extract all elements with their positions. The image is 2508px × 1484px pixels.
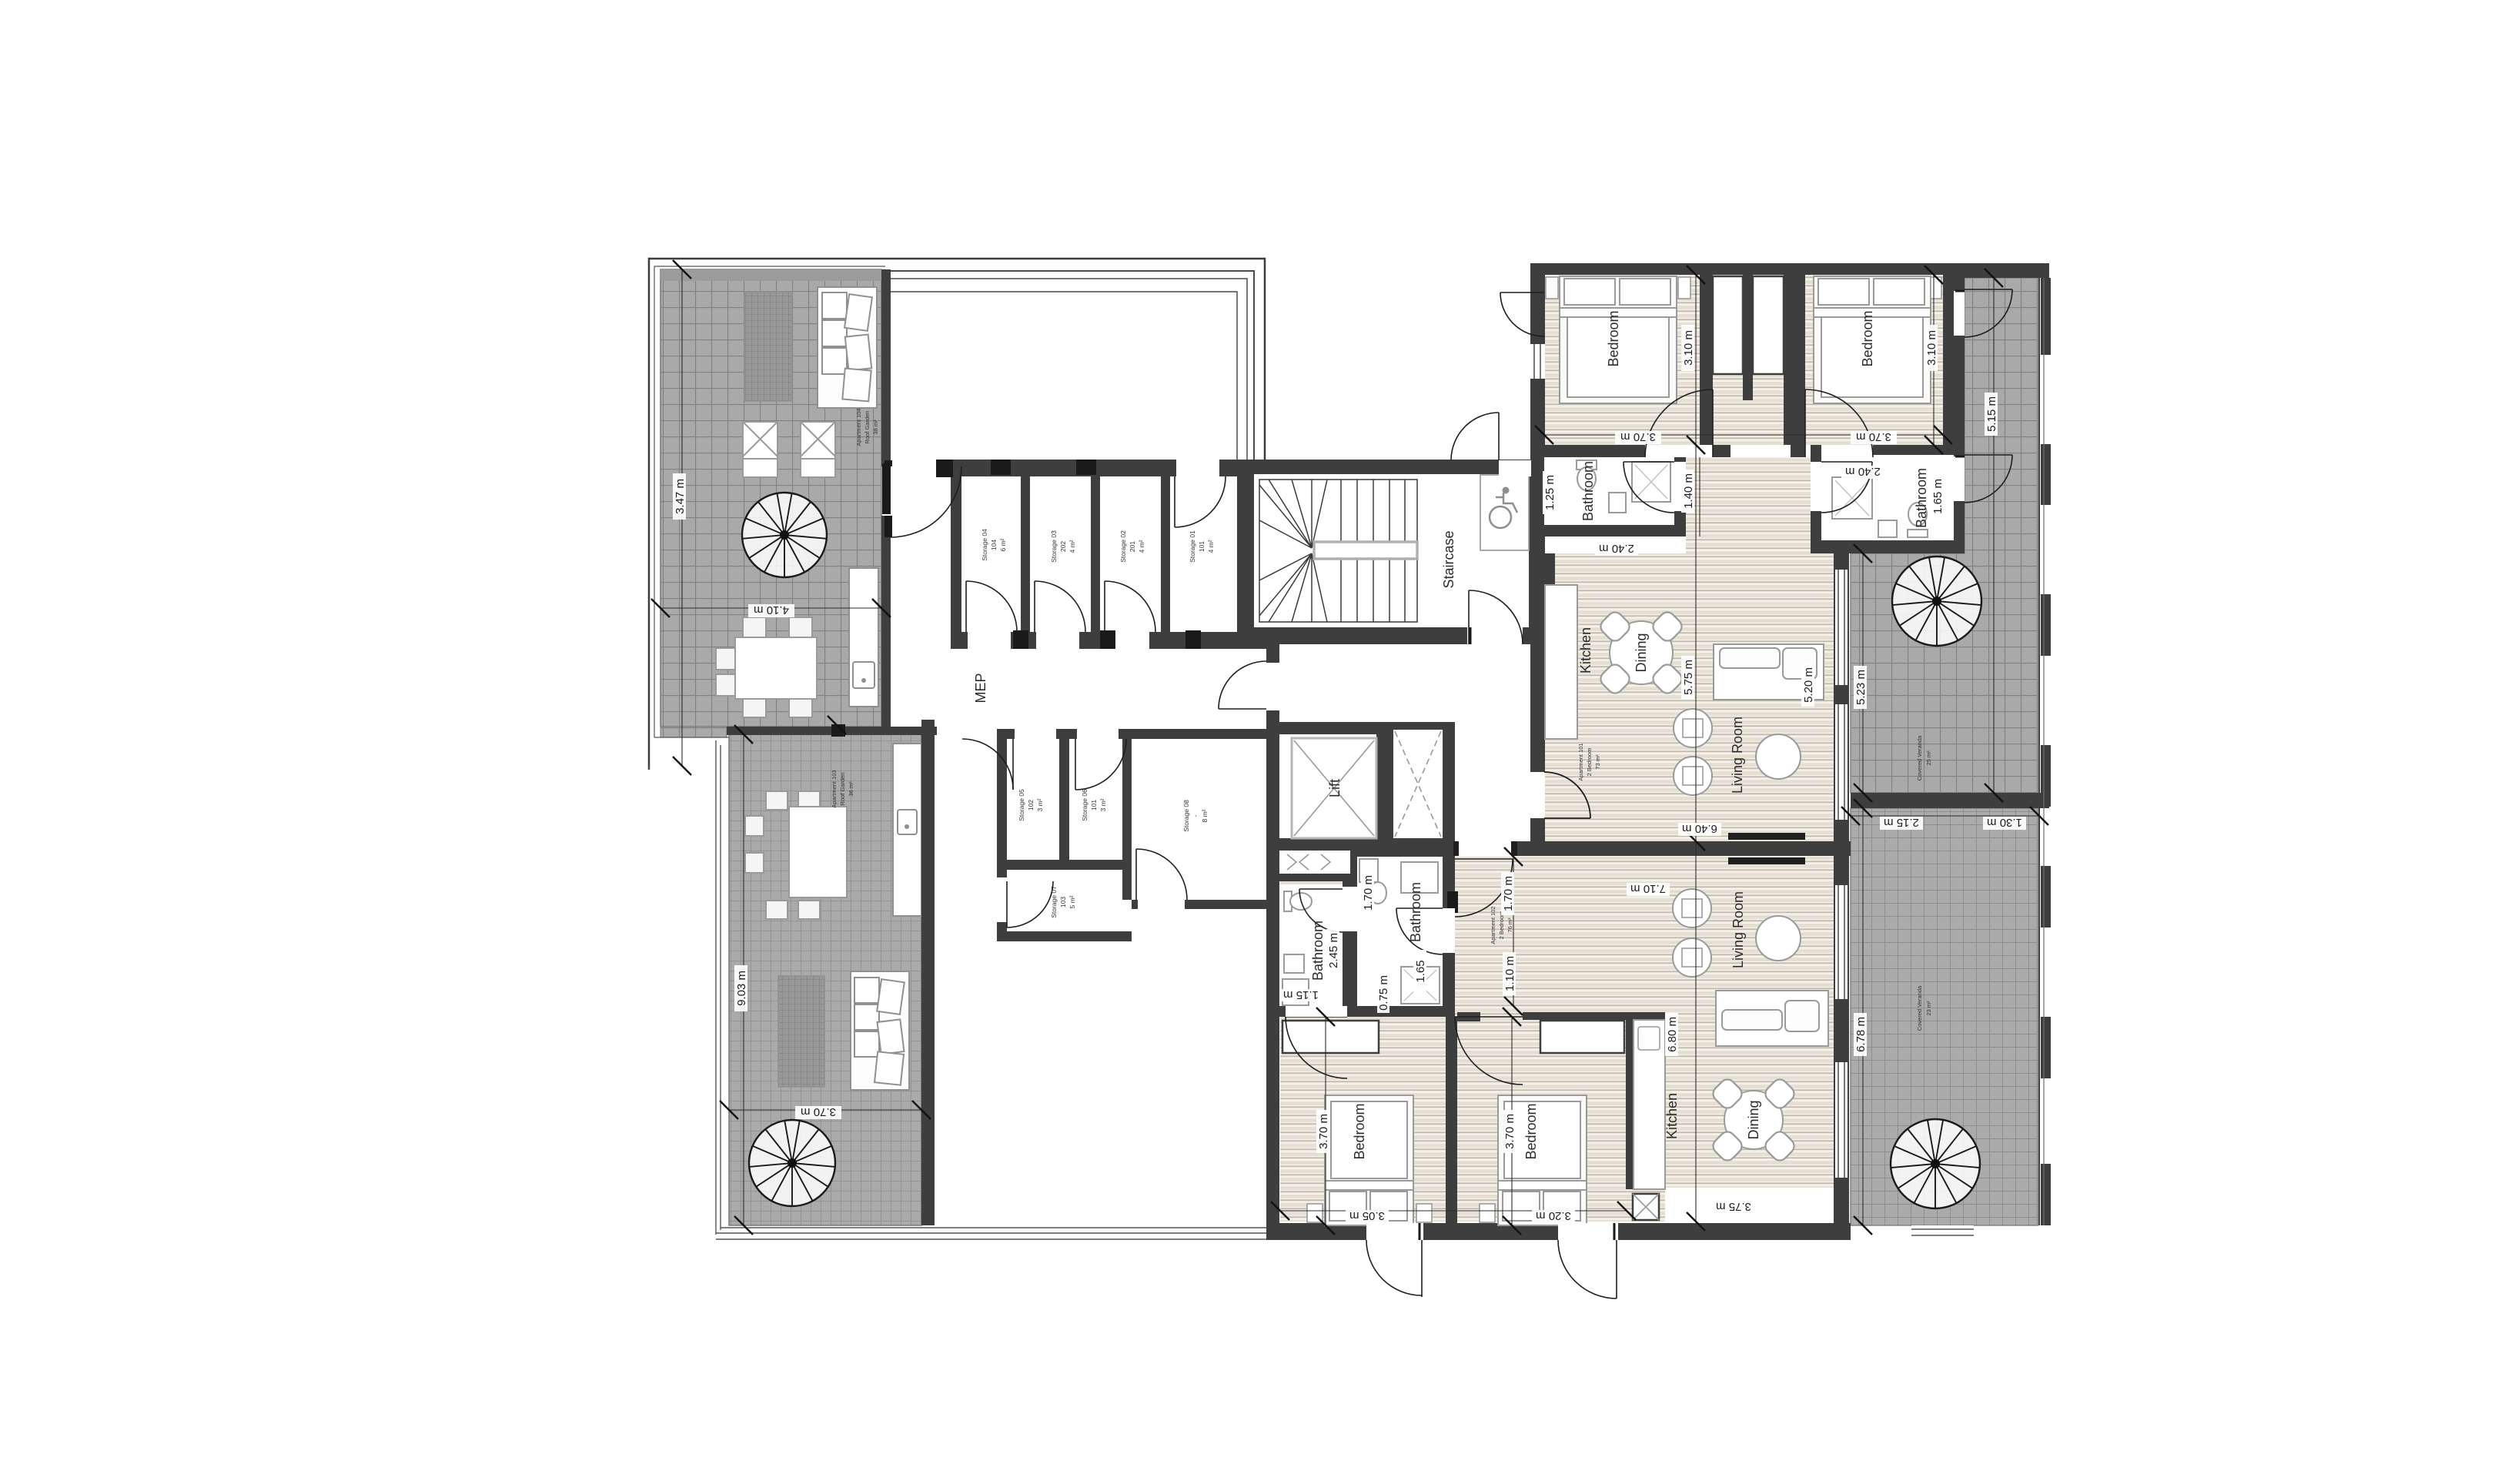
svg-text:1.25 m: 1.25 m [1543, 475, 1557, 510]
svg-text:Bedroom: Bedroom [1523, 1103, 1539, 1159]
svg-text:5.15 m: 5.15 m [1985, 396, 1998, 432]
svg-text:6.80 m: 6.80 m [1666, 1017, 1679, 1052]
svg-text:1.30 m: 1.30 m [1987, 816, 2022, 829]
svg-text:Dining: Dining [1634, 633, 1649, 672]
svg-text:Storage 07: Storage 07 [1050, 886, 1058, 918]
svg-text:Apartment 103: Apartment 103 [831, 770, 838, 807]
svg-text:Bathroom: Bathroom [1408, 882, 1423, 942]
svg-text:1.10 m: 1.10 m [1503, 956, 1517, 991]
svg-text:1.70 m: 1.70 m [1502, 876, 1515, 911]
svg-text:7.10 m: 7.10 m [1630, 882, 1666, 895]
svg-text:25 m²: 25 m² [1925, 750, 1932, 766]
svg-text:Covered Veranda: Covered Veranda [1916, 735, 1923, 780]
svg-text:3 m²: 3 m² [1099, 798, 1107, 811]
svg-text:1.70 m: 1.70 m [1362, 875, 1375, 911]
svg-text:Roof Garden: Roof Garden [864, 411, 871, 444]
svg-text:1.65: 1.65 [1414, 960, 1427, 982]
svg-text:2.40 m: 2.40 m [1599, 542, 1634, 555]
svg-text:2.40 m: 2.40 m [1845, 465, 1881, 478]
svg-text:6.78 m: 6.78 m [1854, 1017, 1868, 1052]
svg-text:Lift: Lift [1327, 779, 1343, 797]
svg-text:3.47 m: 3.47 m [674, 479, 687, 514]
svg-text:5 m²: 5 m² [1068, 895, 1076, 908]
svg-text:104: 104 [990, 540, 998, 550]
svg-text:Storage 08: Storage 08 [1182, 800, 1190, 832]
svg-text:Bathroom: Bathroom [1310, 921, 1326, 981]
svg-text:201: 201 [1129, 541, 1136, 552]
svg-text:3.20 m: 3.20 m [1536, 1209, 1571, 1222]
svg-text:3.75 m: 3.75 m [1716, 1200, 1751, 1213]
svg-text:76 m²: 76 m² [1506, 917, 1513, 933]
svg-text:Apartment 104: Apartment 104 [855, 408, 862, 446]
svg-text:3.70 m: 3.70 m [1856, 430, 1891, 443]
svg-text:23 m²: 23 m² [1925, 1001, 1932, 1016]
svg-text:73 m²: 73 m² [1594, 754, 1601, 770]
svg-text:Storage 04: Storage 04 [981, 529, 988, 561]
svg-text:1.15 m: 1.15 m [1283, 988, 1319, 1001]
svg-text:Staircase: Staircase [1441, 530, 1456, 588]
svg-text:Bedroom: Bedroom [1606, 310, 1621, 366]
svg-text:4 m²: 4 m² [1138, 540, 1145, 553]
svg-text:Bathroom: Bathroom [1914, 468, 1929, 528]
svg-text:2 Bedroom: 2 Bedroom [1498, 911, 1505, 940]
svg-text:-: - [1192, 814, 1199, 817]
svg-text:4 m²: 4 m² [1068, 540, 1076, 553]
svg-text:Storage 03: Storage 03 [1050, 530, 1058, 563]
svg-text:Covered Veranda: Covered Veranda [1916, 985, 1923, 1031]
svg-text:4.10 m: 4.10 m [754, 603, 789, 617]
svg-text:2.15 m: 2.15 m [1884, 816, 1919, 829]
svg-text:103: 103 [1059, 897, 1067, 907]
svg-text:6 m²: 6 m² [999, 538, 1007, 551]
svg-text:3.70 m: 3.70 m [1317, 1114, 1330, 1149]
svg-text:Bedroom: Bedroom [1860, 310, 1875, 366]
svg-text:36 m²: 36 m² [848, 781, 854, 797]
svg-text:2.45 m: 2.45 m [1327, 933, 1340, 968]
svg-text:5.20 m: 5.20 m [1802, 667, 1815, 703]
svg-text:Storage 05: Storage 05 [1018, 789, 1025, 821]
svg-text:Living Room: Living Room [1730, 717, 1745, 794]
svg-text:38 m²: 38 m² [872, 419, 879, 435]
svg-text:Apartment 102: Apartment 102 [1490, 906, 1496, 944]
svg-text:8 m²: 8 m² [1201, 809, 1209, 822]
svg-text:Kitchen: Kitchen [1578, 627, 1593, 673]
svg-text:MEP: MEP [973, 673, 988, 703]
svg-text:5.23 m: 5.23 m [1854, 670, 1868, 705]
svg-text:Storage 06: Storage 06 [1081, 789, 1088, 821]
svg-text:0.75 m: 0.75 m [1377, 975, 1390, 1011]
svg-text:2 Bedroom: 2 Bedroom [1586, 748, 1593, 777]
svg-text:3.10 m: 3.10 m [1682, 330, 1695, 366]
svg-text:Apartment 101: Apartment 101 [1577, 743, 1584, 780]
svg-text:9.03 m: 9.03 m [735, 971, 748, 1006]
svg-text:Bedroom: Bedroom [1352, 1103, 1367, 1159]
svg-text:5.75 m: 5.75 m [1682, 660, 1695, 695]
svg-text:Roof Garden: Roof Garden [839, 773, 846, 806]
svg-text:3.10 m: 3.10 m [1925, 330, 1938, 366]
svg-text:101: 101 [1198, 541, 1206, 552]
svg-text:101: 101 [1090, 800, 1098, 811]
svg-text:3.05 m: 3.05 m [1349, 1209, 1385, 1222]
svg-text:6.40 m: 6.40 m [1682, 822, 1717, 835]
svg-text:Living Room: Living Room [1731, 891, 1746, 968]
svg-text:3.70 m: 3.70 m [1620, 430, 1656, 443]
svg-text:Bathroom: Bathroom [1580, 461, 1596, 521]
svg-text:202: 202 [1059, 541, 1067, 552]
svg-text:Storage 01: Storage 01 [1189, 530, 1196, 563]
svg-text:Dining: Dining [1746, 1100, 1761, 1139]
svg-text:Kitchen: Kitchen [1664, 1093, 1680, 1139]
svg-text:3 m²: 3 m² [1036, 798, 1044, 811]
svg-text:Storage 02: Storage 02 [1119, 530, 1127, 563]
svg-text:102: 102 [1027, 800, 1035, 811]
svg-text:1.65 m: 1.65 m [1931, 479, 1945, 514]
svg-text:3.70 m: 3.70 m [1503, 1114, 1517, 1149]
svg-text:4 m²: 4 m² [1207, 540, 1215, 553]
svg-text:1.40 m: 1.40 m [1682, 473, 1695, 509]
svg-text:3.70 m: 3.70 m [801, 1105, 836, 1118]
